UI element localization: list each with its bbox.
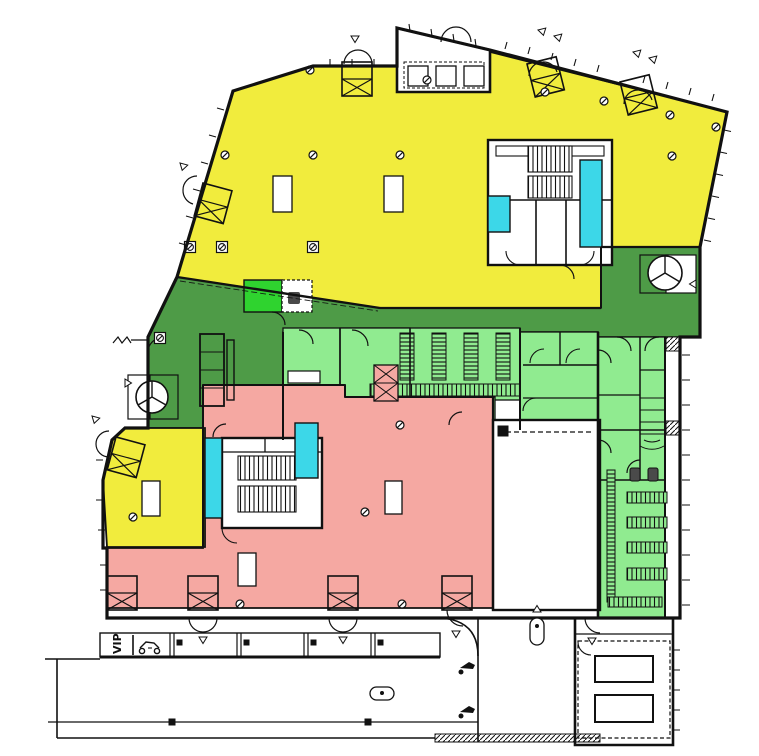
north-room	[397, 27, 490, 92]
ramp-hatches	[666, 337, 680, 435]
zone-utility-brightgreen	[244, 280, 282, 312]
revolving-door-east	[640, 255, 696, 293]
floor-plan-svg: VIP	[0, 0, 759, 756]
motorcycle-markers	[459, 662, 476, 719]
floor-plan-page: VIP	[0, 0, 759, 756]
dock-rooms	[575, 618, 673, 745]
escalator-box	[374, 365, 398, 401]
parking-row	[100, 633, 440, 657]
break-symbol	[113, 337, 148, 343]
revolving-door-west	[128, 375, 178, 419]
loading-bay	[493, 420, 600, 610]
vip-parking-label: VIP	[111, 633, 124, 654]
cloakroom-counter	[288, 371, 320, 383]
